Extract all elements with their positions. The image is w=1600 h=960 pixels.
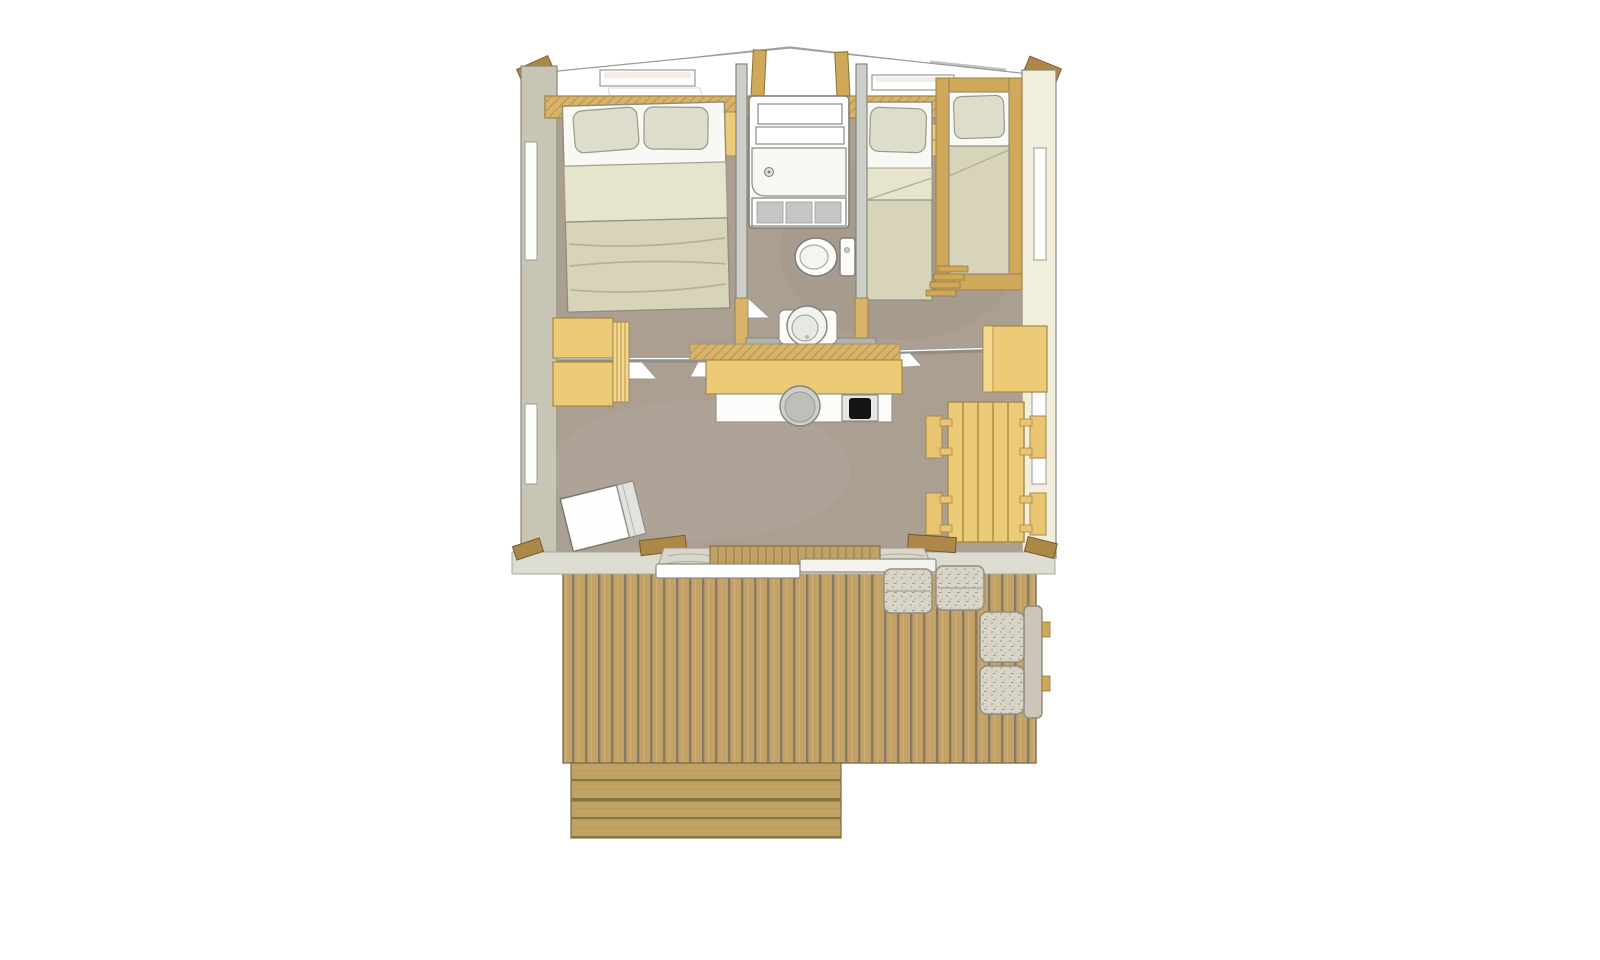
chair-arm	[940, 419, 952, 426]
chair-arm	[1020, 496, 1032, 503]
blanket-fold	[564, 162, 727, 222]
single-bed	[866, 102, 932, 300]
shower-drain-dot	[768, 171, 771, 174]
toilet-flush-button	[845, 248, 850, 253]
sofa-foot	[1042, 676, 1050, 691]
outdoor-sofa	[980, 606, 1050, 718]
shower-glass-pane	[815, 202, 841, 223]
chair-arm	[940, 525, 952, 532]
chair-arm	[1020, 419, 1032, 426]
sofa-cushion-texture	[980, 666, 1024, 714]
kitchen	[690, 344, 902, 426]
chair-arm	[940, 496, 952, 503]
shower-glass-pane	[786, 202, 812, 223]
roof-beam	[835, 52, 851, 103]
roof-window-glass	[604, 72, 691, 78]
toilet	[795, 238, 855, 276]
chair-seat	[926, 416, 942, 458]
cabinet-top-face	[983, 326, 993, 392]
pillow	[953, 95, 1004, 139]
sofa-foot	[1042, 622, 1050, 637]
ladder-rung	[930, 282, 960, 288]
storage-cabinet	[983, 326, 1047, 392]
pillow	[644, 107, 708, 150]
chair-arm	[940, 448, 952, 455]
kitchen-back-wall-hatch	[690, 344, 900, 360]
step-board-lines	[571, 763, 841, 801]
right-wall-window	[1034, 148, 1046, 260]
dining-table	[948, 402, 1024, 542]
wardrobe-lower	[553, 362, 613, 406]
deck-steps	[571, 763, 841, 838]
bed-frame-right	[1009, 78, 1022, 290]
toilet-seat	[800, 245, 828, 269]
left-wall-window	[525, 404, 537, 484]
framed-single-bed	[926, 78, 1022, 296]
shower-shelf	[756, 127, 844, 144]
blanket	[866, 200, 932, 300]
floor-plan-canvas	[0, 0, 1600, 960]
double-bed	[562, 102, 729, 312]
sliding-door-panel	[656, 564, 800, 578]
shower-cabin	[749, 96, 849, 228]
blanket	[949, 146, 1009, 274]
chair-seat	[1030, 493, 1046, 535]
pillow	[572, 107, 639, 154]
right-wall	[1022, 70, 1056, 558]
basin-bowl-inner	[792, 315, 818, 341]
shower-glass-pane	[757, 202, 783, 223]
chair-arm	[1020, 525, 1032, 532]
step-board-lines	[571, 801, 841, 838]
ladder-rung	[926, 290, 956, 296]
chair-seat	[1030, 416, 1046, 458]
kitchen-sink-inner	[785, 392, 815, 422]
bed-frame-left	[936, 78, 949, 290]
wardrobe	[553, 318, 629, 406]
left-wall-window	[525, 142, 537, 260]
sofa-cushion-texture	[980, 612, 1024, 662]
wardrobe-upper	[553, 318, 613, 358]
basin-drain	[805, 335, 809, 339]
sofa-backrest	[1024, 606, 1042, 718]
chair-seat	[926, 493, 942, 535]
ladder-rung	[934, 274, 964, 280]
chair-arm	[1020, 448, 1032, 455]
ladder-rung	[938, 266, 968, 272]
blanket-fold	[866, 168, 932, 200]
roof-beam	[751, 50, 767, 103]
toilet-cistern	[840, 238, 855, 276]
pillow	[869, 107, 927, 153]
blanket	[565, 218, 729, 312]
hob-burner	[849, 398, 871, 419]
shower-shelf	[758, 104, 842, 124]
